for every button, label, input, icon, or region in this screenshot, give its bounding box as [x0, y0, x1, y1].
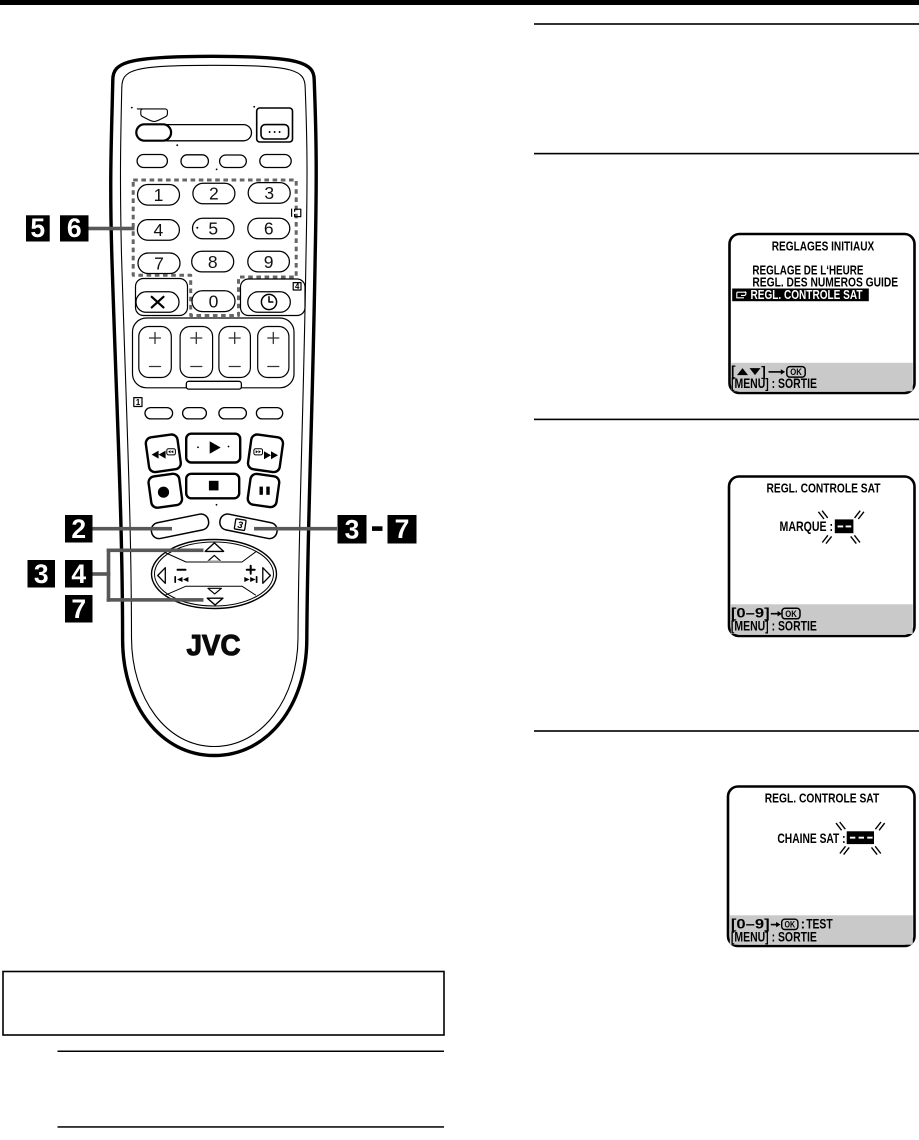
svg-text:JVC: JVC — [187, 630, 241, 662]
svg-text:3: 3 — [345, 514, 360, 544]
svg-text:REGL. CONTROLE SAT: REGL. CONTROLE SAT — [767, 481, 881, 496]
svg-text:3: 3 — [34, 559, 49, 589]
svg-text:6: 6 — [67, 213, 82, 243]
svg-text:REGL. CONTROLE SAT: REGL. CONTROLE SAT — [751, 288, 863, 302]
svg-text:OK: OK — [785, 609, 797, 619]
svg-text:[MENU] : SORTIE: [MENU] : SORTIE — [731, 376, 817, 391]
svg-text:3: 3 — [264, 183, 274, 203]
svg-text:2: 2 — [209, 184, 219, 204]
svg-text:[MENU] : SORTIE: [MENU] : SORTIE — [731, 619, 817, 634]
svg-text:5: 5 — [30, 213, 45, 243]
svg-text:REGLAGES INITIAUX: REGLAGES INITIAUX — [772, 238, 875, 253]
svg-text:4: 4 — [154, 220, 164, 240]
svg-text:4: 4 — [295, 282, 300, 291]
svg-text:CHAINE SAT :: CHAINE SAT : — [777, 831, 845, 846]
svg-text:8: 8 — [208, 252, 218, 272]
svg-text:7: 7 — [71, 594, 86, 624]
svg-text:1: 1 — [136, 398, 141, 407]
svg-text:MARQUE :: MARQUE : — [780, 519, 834, 534]
svg-text:2: 2 — [71, 514, 86, 544]
svg-text:7: 7 — [154, 253, 164, 273]
svg-text:1: 1 — [154, 185, 164, 205]
svg-text:REGL. CONTROLE SAT: REGL. CONTROLE SAT — [765, 791, 880, 806]
svg-text:6: 6 — [264, 219, 274, 239]
svg-text:0: 0 — [209, 292, 219, 312]
svg-text:[MENU] : SORTIE: [MENU] : SORTIE — [731, 930, 817, 945]
svg-text:7: 7 — [395, 514, 410, 544]
svg-text:5: 5 — [208, 219, 218, 239]
svg-text:4: 4 — [71, 559, 86, 589]
svg-text:OK: OK — [785, 919, 796, 929]
svg-text:9: 9 — [264, 252, 274, 272]
